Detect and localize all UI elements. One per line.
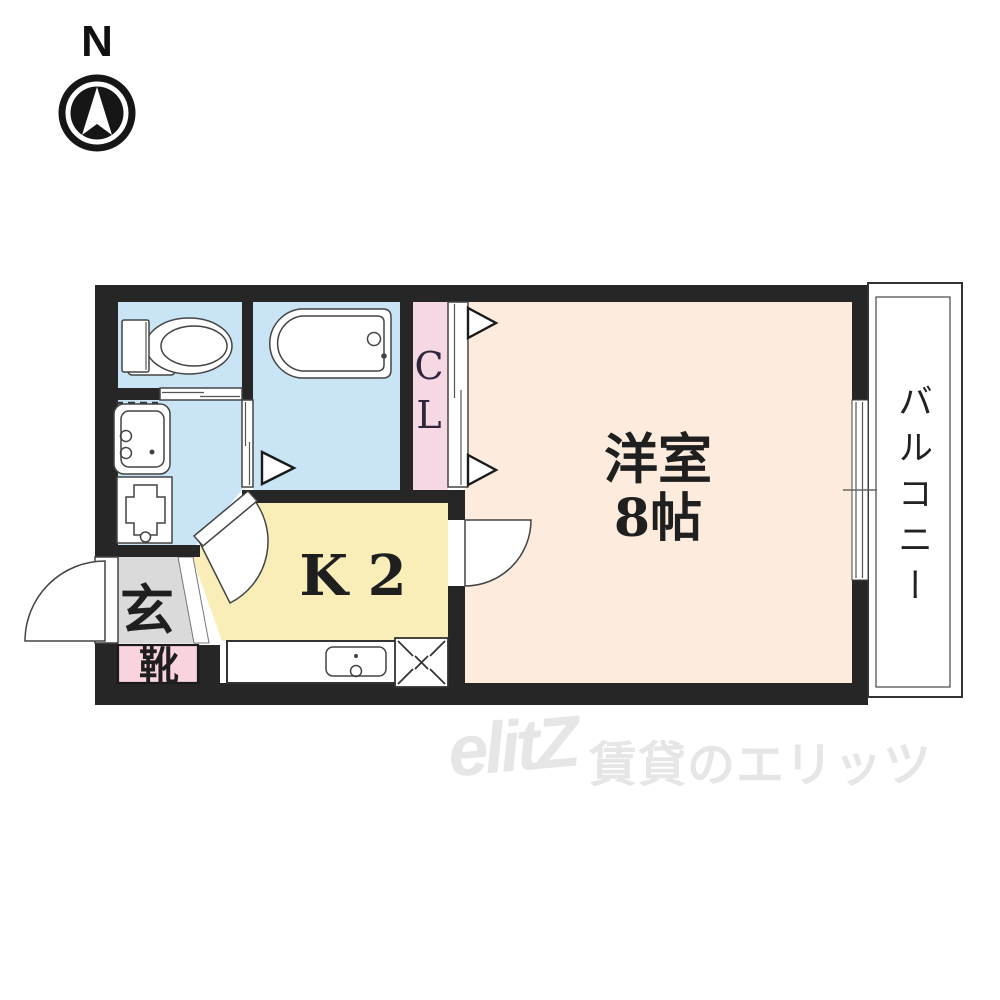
wall-top (95, 285, 868, 302)
shoe-box-label: 靴 (128, 647, 190, 687)
washbasin-icon (114, 404, 170, 474)
entrance-door-swing (25, 561, 105, 641)
western-room-size-label: 8帖 (558, 493, 758, 545)
bathtub-icon (270, 309, 391, 378)
entrance-label: 玄 (118, 583, 176, 637)
floorplan-drawing (0, 0, 1000, 1000)
wall-under-toilet (115, 388, 160, 400)
wall-washroom-bottom (95, 545, 200, 557)
toilet-icon (122, 318, 232, 375)
wall-toilet-bath (242, 302, 253, 400)
washing-machine-pan-icon (117, 477, 172, 543)
compass-icon (62, 78, 132, 148)
closet-doors (448, 302, 468, 487)
closet-label: CL (410, 344, 448, 442)
wall-kitchen-room-lower (448, 586, 465, 683)
stove-icon (395, 638, 448, 687)
wall-shoe-stub (198, 645, 220, 683)
western-room-label: 洋室 (558, 432, 758, 486)
wall-kitchen-room-upper (448, 503, 465, 520)
toilet-door (160, 388, 242, 400)
wall-bottom (95, 683, 868, 705)
floorplan-page: elitZ 賃貸のエリッツ (0, 0, 1000, 1000)
wall-right-upper (852, 302, 868, 400)
bathroom-door (242, 400, 253, 487)
compass-north-label: N (72, 20, 122, 64)
kitchen-label: K 2 (258, 548, 448, 604)
wall-right-lower (852, 580, 868, 683)
balcony-label: バルコニー (894, 383, 929, 613)
wall-under-bath (242, 490, 465, 503)
kitchen-counter (227, 638, 448, 687)
